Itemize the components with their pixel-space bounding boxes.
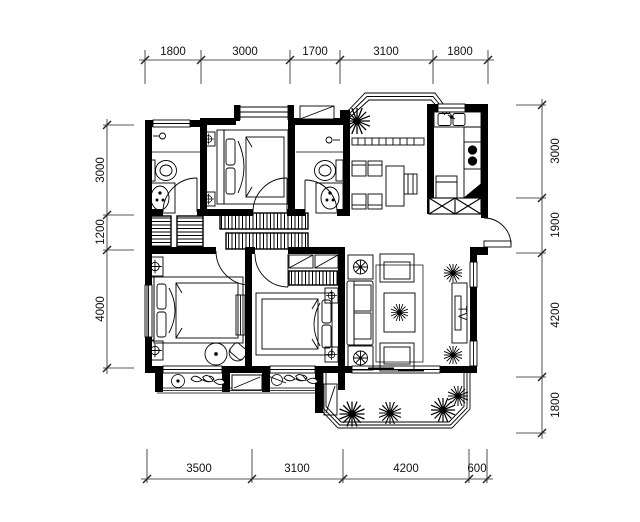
floor-plan-canvas: 1800 3000 1700 3100 1800 3000 1200 4000 — [0, 0, 640, 522]
room-corridor — [147, 213, 308, 249]
room-living: TV — [347, 254, 468, 371]
window-icon — [145, 285, 152, 337]
dim-top-3: 1700 — [302, 46, 328, 58]
dining-chair-icon — [404, 174, 417, 194]
wardrobe-icon — [289, 271, 338, 285]
bed-icon — [147, 277, 243, 343]
dim-bottom-1: 3500 — [186, 463, 212, 475]
tv-cabinet-icon: TV — [452, 283, 468, 343]
plant-icon — [448, 386, 468, 406]
tv-label: TV — [456, 306, 468, 321]
dining-table-icon — [386, 166, 404, 206]
window-panel-icon — [232, 375, 262, 390]
window-icon — [270, 366, 315, 373]
dim-bottom-3: 4200 — [393, 463, 419, 475]
dim-left-3: 4000 — [95, 296, 107, 322]
closet-icon — [147, 216, 171, 247]
sofa-icon — [347, 281, 373, 345]
plant-icon — [379, 402, 401, 424]
window-icon — [163, 366, 222, 373]
plant-icon — [444, 346, 462, 364]
dim-right-1: 3000 — [550, 138, 562, 164]
dimensions-right: 3000 1900 4200 1800 — [516, 99, 562, 439]
dim-top-2: 3000 — [232, 46, 258, 58]
desk-icon — [236, 295, 245, 335]
dim-bottom-2: 3100 — [284, 463, 310, 475]
armchair-icon — [380, 254, 414, 282]
window-icon — [470, 262, 477, 287]
dim-bottom-4: 600 — [467, 463, 486, 475]
toilet-icon — [315, 160, 344, 181]
plant-icon — [444, 264, 462, 282]
overhead-cabinet-icon — [289, 255, 313, 268]
kitchen-sink-icon — [438, 114, 465, 126]
dim-left-1: 3000 — [95, 157, 107, 183]
shower-icon — [153, 133, 166, 139]
side-table-icon — [348, 255, 373, 279]
window-icon — [470, 341, 477, 366]
corner-counter-icon — [464, 184, 481, 198]
room-bedroom-1 — [202, 130, 288, 206]
door-icon — [253, 178, 287, 212]
closet-icon — [177, 216, 203, 247]
dim-left-2: 1200 — [95, 219, 107, 245]
dimensions-left: 3000 1200 4000 — [95, 119, 134, 374]
sink-icon — [316, 183, 343, 213]
dim-right-3: 4200 — [550, 302, 562, 328]
wardrobe-icon — [226, 233, 308, 249]
overhead-cabinet-icon — [315, 255, 338, 268]
high-window-icon — [300, 106, 334, 119]
room-dining — [344, 108, 417, 209]
dim-right-4: 1800 — [550, 392, 562, 418]
door-icon — [255, 254, 288, 287]
coffee-table-icon — [384, 293, 415, 332]
round-table-icon — [205, 343, 227, 365]
window-icon — [438, 104, 465, 112]
shower-icon — [326, 137, 340, 143]
dimensions-bottom: 3500 3100 4200 600 — [141, 449, 493, 483]
room-kitchen — [429, 112, 481, 214]
stove-icon — [464, 142, 481, 169]
dining-chair-icon — [368, 194, 382, 209]
bed-icon — [217, 130, 288, 204]
dim-top-4: 3100 — [373, 46, 399, 58]
floor-plan-page: 1800 3000 1700 3100 1800 3000 1200 4000 — [0, 0, 640, 522]
bed-icon — [256, 293, 332, 355]
nightstand-icon — [325, 288, 338, 303]
dimensions-top: 1800 3000 1700 3100 1800 — [139, 46, 494, 84]
nightstand-icon — [325, 347, 338, 362]
room-bedroom-2 — [147, 257, 249, 365]
bay-window-icon — [240, 105, 288, 120]
plant-icon — [340, 402, 365, 427]
kitchen-sliding-door-icon — [429, 198, 481, 214]
refrigerator-icon — [436, 176, 457, 198]
room-bedroom-3 — [256, 255, 338, 362]
room-bath-2 — [296, 137, 343, 213]
sliding-door-icon — [352, 366, 440, 373]
plant-icon — [431, 398, 455, 422]
dining-chair-icon — [352, 194, 366, 209]
dim-top-1: 1800 — [160, 46, 186, 58]
toilet-icon — [148, 160, 177, 181]
room-bath-1 — [147, 133, 200, 213]
door-icon — [216, 251, 250, 285]
planter-strip — [157, 374, 322, 393]
dim-top-5: 1800 — [447, 46, 473, 58]
entry-door-icon — [484, 218, 511, 247]
dim-right-2: 1900 — [550, 212, 562, 238]
dining-chair-icon — [352, 161, 366, 176]
round-table-icon — [172, 375, 185, 388]
window-icon — [153, 120, 190, 127]
dining-chair-icon — [368, 161, 382, 176]
window-seat — [352, 138, 424, 145]
wardrobe-icon — [220, 213, 308, 229]
